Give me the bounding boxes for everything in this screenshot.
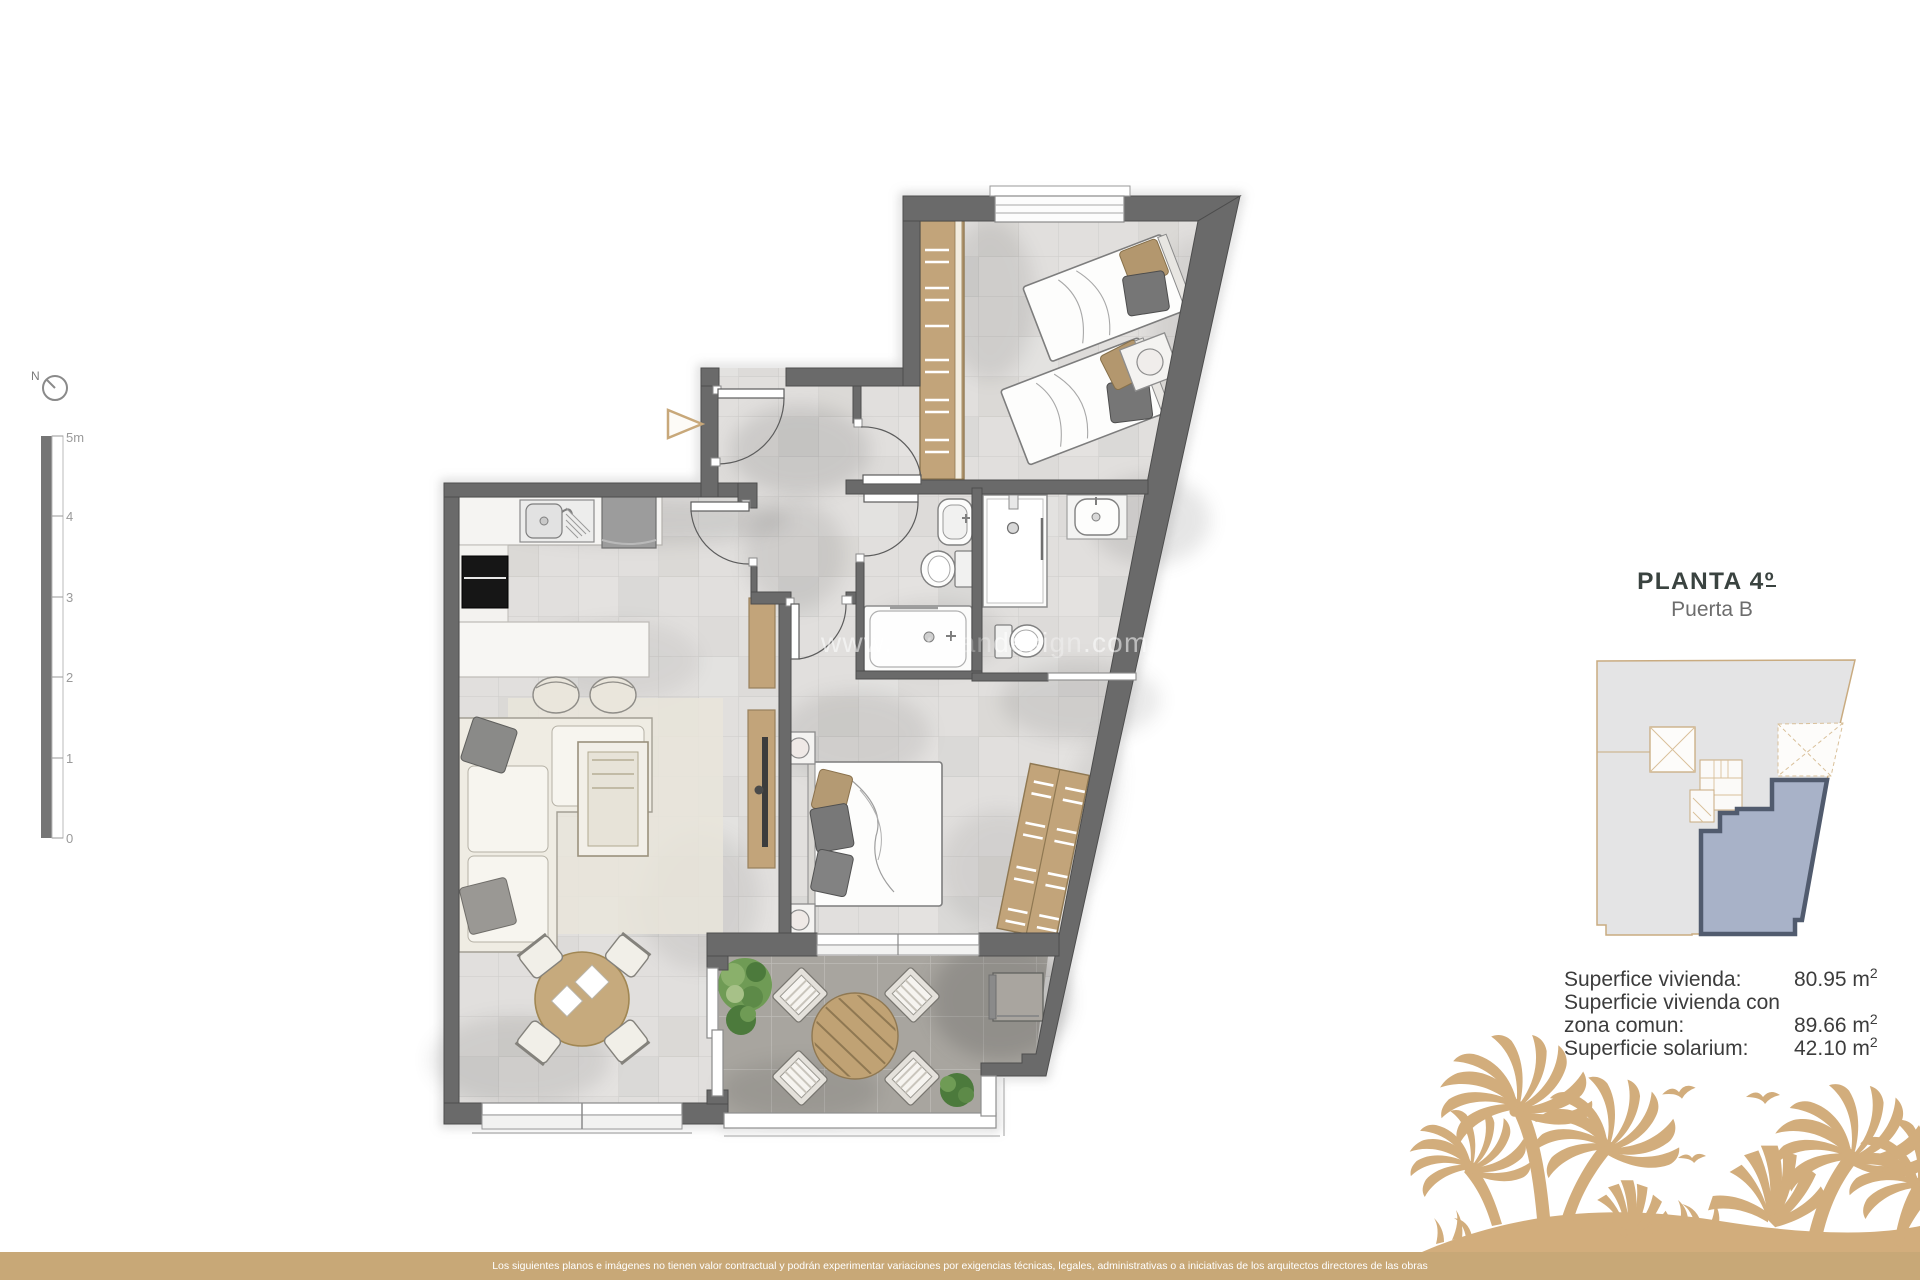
svg-text:Superficie solarium:: Superficie solarium: [1564,1037,1748,1060]
svg-text:Superfice vivienda:: Superfice vivienda: [1564,968,1741,991]
svg-text:80.95 m2: 80.95 m2 [1794,965,1878,991]
svg-text:PLANTA 4º: PLANTA 4º [1637,568,1775,595]
svg-text:2: 2 [66,670,73,685]
svg-text:89.66 m2: 89.66 m2 [1794,1011,1878,1037]
svg-text:5m: 5m [66,430,84,445]
svg-text:Puerta B: Puerta B [1671,598,1753,621]
svg-text:www.mygrandesign.com: www.mygrandesign.com [820,627,1148,658]
svg-text:3: 3 [66,590,73,605]
svg-text:42.10 m2: 42.10 m2 [1794,1034,1878,1060]
svg-text:1: 1 [66,751,73,766]
svg-text:0: 0 [66,831,73,846]
svg-text:Los siguientes planos e imágen: Los siguientes planos e imágenes no tien… [492,1260,1428,1272]
svg-text:zona comun:: zona comun: [1564,1014,1684,1037]
svg-text:Superficie vivienda con: Superficie vivienda con [1564,991,1780,1014]
svg-text:4: 4 [66,509,73,524]
svg-text:N: N [31,369,40,383]
